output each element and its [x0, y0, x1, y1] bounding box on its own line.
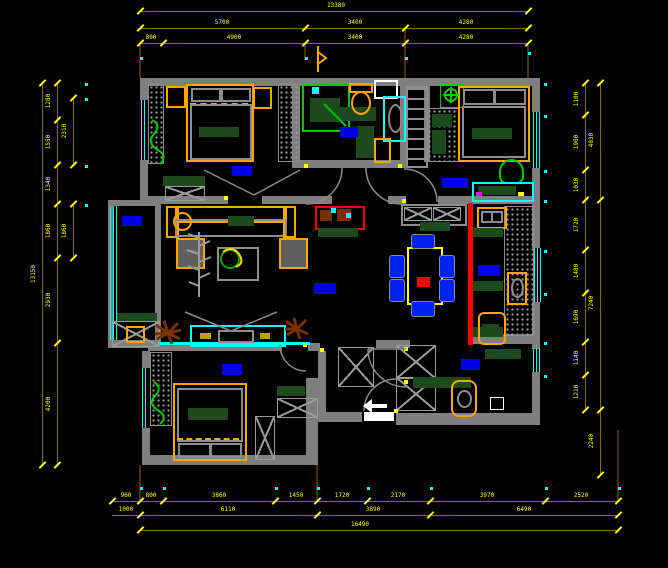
entry-arrow-icon [363, 399, 387, 413]
dimension-label: 1450 [289, 493, 303, 499]
dimension-line [73, 204, 74, 258]
dimension-label: 13380 [327, 3, 345, 9]
dimension-end-dot [85, 165, 88, 168]
dimension-end-dot [544, 342, 547, 345]
dimension-label: 4280 [459, 35, 473, 41]
dimension-end-dot [275, 487, 278, 490]
dimension-label: 1100 [574, 92, 580, 106]
dimension-end-dot [544, 250, 547, 253]
room-label-entry [461, 359, 480, 370]
dimension-line [42, 83, 43, 465]
dimension-label: 4900 [227, 35, 241, 41]
dimension-label: 1000 [119, 507, 133, 513]
dimension-label: 3860 [212, 493, 226, 499]
dimension-label: 1550 [46, 135, 52, 149]
dimension-end-dot [85, 204, 88, 207]
dimension-label: 3400 [348, 20, 362, 26]
room-label-living-room [314, 283, 336, 294]
dimension-label: 1030 [574, 178, 580, 192]
dimension-line [140, 530, 618, 531]
room-label-balcony [122, 216, 142, 226]
dimension-end-dot [618, 487, 621, 490]
dimension-label: 1480 [574, 264, 580, 278]
dimension-end-dot [430, 487, 433, 490]
decor-screen [187, 232, 211, 297]
dimension-label: 2310 [62, 124, 68, 138]
shower-glass [324, 104, 346, 126]
dimension-line [140, 28, 528, 29]
dimension-label: 1860 [46, 224, 52, 238]
dimension-end-dot [405, 57, 408, 60]
dimension-end-dot [544, 83, 547, 86]
dimension-label: 1210 [574, 385, 580, 399]
dimension-end-dot [544, 115, 547, 118]
dimension-label: 800 [146, 493, 157, 499]
dimension-end-dot [544, 293, 547, 296]
dimension-line [73, 98, 74, 165]
dimension-end-dot [544, 375, 547, 378]
dimension-label: 1280 [46, 94, 52, 108]
dimension-label: 13150 [31, 265, 37, 283]
dimension-label: 16490 [351, 522, 369, 528]
dimension-label: 1140 [574, 351, 580, 365]
dimension-line [112, 515, 618, 516]
dimension-label: 1720 [335, 493, 349, 499]
dimension-end-dot [163, 487, 166, 490]
dimension-label: 800 [146, 35, 157, 41]
dimension-label: 4030 [589, 133, 595, 147]
room-label-bedroom-2 [442, 178, 468, 188]
dimension-label: 4200 [46, 397, 52, 411]
dimension-label: 6110 [221, 507, 235, 513]
room-label-bathroom [340, 127, 358, 137]
dimension-label: 1720 [574, 218, 580, 232]
toilet-icon [350, 84, 372, 114]
dimension-end-dot [140, 487, 143, 490]
dimension-line [140, 43, 528, 44]
dimension-label: 2930 [46, 293, 52, 307]
dimension-end-dot [545, 487, 548, 490]
dimension-label: 3970 [480, 493, 494, 499]
room-label-kitchen [478, 265, 500, 276]
dimension-label: 1860 [62, 224, 68, 238]
dimension-label: 1340 [46, 177, 52, 191]
dimension-end-dot [85, 98, 88, 101]
dimension-label: 3890 [366, 507, 380, 513]
dimension-label: 1900 [574, 135, 580, 149]
dimension-line [140, 11, 528, 12]
dimension-end-dot [528, 52, 531, 55]
floor-plan-canvas: 1338057003400428080049003400428096080038… [0, 0, 668, 568]
dimension-end-dot [367, 487, 370, 490]
section-marker-icon [318, 46, 326, 72]
dimension-label: 7240 [589, 296, 595, 310]
dimension-label: 960 [121, 493, 132, 499]
dimension-label: 3400 [348, 35, 362, 41]
room-label-master-bedroom [232, 166, 252, 176]
dimension-end-dot [140, 57, 143, 60]
dimension-end-dot [544, 200, 547, 203]
dimension-label: 4280 [459, 20, 473, 26]
room-label-bedroom-3 [222, 364, 242, 375]
dimension-label: 1690 [574, 310, 580, 324]
dimension-end-dot [305, 57, 308, 60]
dimension-label: 2170 [391, 493, 405, 499]
dimension-line [57, 83, 58, 465]
dimension-end-dot [85, 83, 88, 86]
dim-extension-lines [140, 28, 618, 501]
dimension-label: 6490 [517, 507, 531, 513]
dimension-end-dot [317, 487, 320, 490]
dimension-end-dot [544, 170, 547, 173]
dimension-label: 2520 [574, 493, 588, 499]
dimension-label: 5700 [215, 20, 229, 26]
plants [151, 87, 459, 424]
dimension-label: 2240 [589, 434, 595, 448]
dimension-line [600, 83, 601, 475]
